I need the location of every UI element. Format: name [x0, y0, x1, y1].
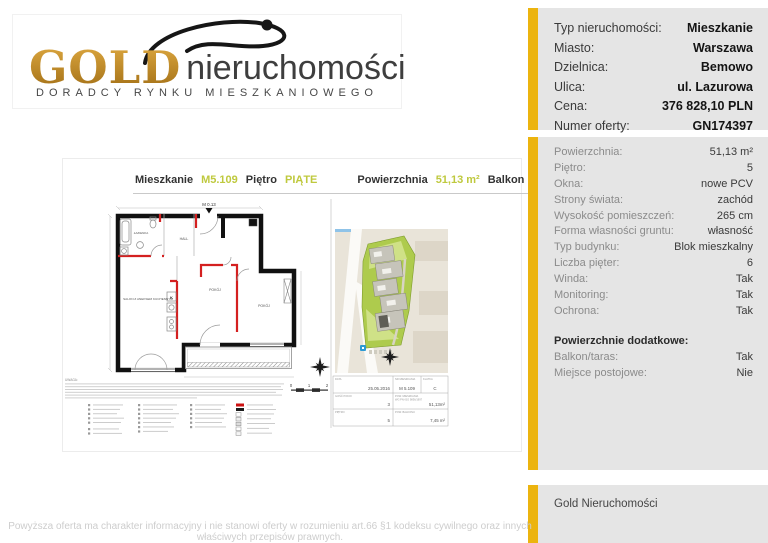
plan-area-label: Powierzchnia	[357, 174, 427, 186]
scale-bar: 0 1 2	[290, 383, 329, 392]
tb-balcony-label: POW. BALKONU	[395, 410, 415, 414]
floor-plan-drawing: K M 0.13 ŁAZIENKA SALON Z ANEKSEM KUCHEN…	[63, 199, 523, 453]
detail-row: Typ budynku: Blok mieszkalny	[554, 241, 753, 257]
plan-floor-label: Piętro	[246, 174, 277, 186]
tb-date-label: DATA	[335, 377, 342, 381]
room-label-room1: POKÓJ	[209, 287, 221, 292]
agency-name: Gold Nieruchomości	[554, 498, 753, 510]
room-label-living: SALON Z ANEKSEM KUCHENNYM	[123, 297, 173, 301]
balcony	[186, 347, 292, 369]
tb-balcony-value: 7,45 m²	[430, 418, 445, 423]
details-rows: Powierzchnia: 51,13 m² Piętro: 5 Okna: n…	[554, 146, 753, 321]
plan-note: UWAGA:	[65, 378, 284, 398]
room-label-room2: POKÓJ	[258, 303, 270, 308]
detail-row: Monitoring: Tak	[554, 289, 753, 305]
detail-row: Ochrona: Tak	[554, 305, 753, 321]
plan-floor-value: PIĄTE	[285, 174, 317, 186]
apartment-plan: K M 0.13 ŁAZIENKA SALON Z ANEKSEM KUCHEN…	[108, 202, 301, 377]
plan-apartment-label: Mieszkanie	[135, 174, 193, 186]
detail-row: Piętro: 5	[554, 162, 753, 178]
tb-floor-label: PIĘTRO	[335, 410, 345, 414]
scale-tick-1: 1	[308, 383, 311, 388]
detail-row: Winda: Tak	[554, 273, 753, 289]
plan-balcony-label: Balkon	[488, 174, 525, 186]
detail-row: Powierzchnia: 51,13 m²	[554, 146, 753, 162]
tb-unit-value: M 5.109	[399, 386, 415, 391]
tb-area-value: 51,13m²	[429, 402, 446, 407]
compass-rose-icon	[310, 357, 330, 377]
tb-floor-value: 5	[388, 418, 391, 423]
entrance-label: M 0.13	[202, 202, 216, 207]
site-map	[335, 229, 448, 373]
floor-plan-document: MieszkanieM5.109PiętroPIĄTEPowierzchnia5…	[62, 158, 522, 452]
detail-row: Strony świata: zachód	[554, 194, 753, 210]
plan-area-value: 51,13 m²	[436, 174, 480, 186]
summary-row: Numer oferty: GN174397	[554, 119, 753, 139]
detail-row: Liczba pięter: 6	[554, 257, 753, 273]
summary-row: Miasto: Warszawa	[554, 41, 753, 61]
plan-legend	[88, 404, 276, 436]
logo-rest-text: nieruchomości	[186, 49, 405, 87]
offer-page: GOLDnieruchomości DORADCY RYNKU MIESZKAN…	[0, 0, 768, 543]
detail-row: Wysokość pomieszczeń: 265 cm	[554, 210, 753, 226]
scale-tick-0: 0	[290, 383, 293, 388]
note-label: UWAGA:	[65, 378, 78, 382]
summary-row: Ulica: ul. Lazurowa	[554, 80, 753, 100]
tb-staircase-value: C	[433, 386, 436, 391]
footer-disclaimer: Powyższa oferta ma charakter informacyjn…	[0, 521, 540, 543]
extras-rows: Balkon/taras: Tak Miejsce postojowe: Nie	[554, 351, 753, 383]
room-label-bathroom: ŁAZIENKA	[134, 231, 149, 235]
plan-header: MieszkanieM5.109PiętroPIĄTEPowierzchnia5…	[133, 174, 576, 194]
extras-heading: Powierzchnie dodatkowe:	[554, 335, 753, 351]
tb-date-value: 25.05.2016	[368, 386, 391, 391]
extra-row: Miejsce postojowe: Nie	[554, 367, 753, 383]
title-block: DATA NR MIESZKANIA KLATKA ILOŚĆ POKOI PO…	[333, 376, 448, 426]
agency-logo: GOLDnieruchomości DORADCY RYNKU MIESZKAN…	[12, 14, 402, 109]
tb-rooms-label: ILOŚĆ POKOI	[335, 393, 352, 398]
plan-apartment-value: M5.109	[201, 174, 238, 186]
tb-unit-label: NR MIESZKANIA	[395, 377, 415, 381]
tb-area-label: POW. MIESZKANIA	[395, 394, 418, 398]
summary-panel: Typ nieruchomości: Mieszkanie Miasto: Wa…	[528, 8, 768, 130]
agency-panel: Gold Nieruchomości	[528, 485, 768, 543]
details-panel: Powierzchnia: 51,13 m² Piętro: 5 Okna: n…	[528, 137, 768, 470]
detail-row: Okna: nowe PCV	[554, 178, 753, 194]
tb-area-label2: WG PN-ISO 9836/1997	[395, 397, 423, 401]
logo-tagline: DORADCY RYNKU MIESZKANIOWEGO	[13, 87, 401, 99]
summary-row: Typ nieruchomości: Mieszkanie	[554, 21, 753, 41]
summary-row: Dzielnica: Bemowo	[554, 60, 753, 80]
room-label-hall: HALL	[180, 237, 189, 241]
extra-row: Balkon/taras: Tak	[554, 351, 753, 367]
scale-tick-2: 2	[326, 383, 329, 388]
summary-row: Cena: 376 828,10 PLN	[554, 99, 753, 119]
map-marker-icon	[360, 345, 366, 351]
detail-row: Forma własności gruntu: własność	[554, 225, 753, 241]
tb-rooms-value: 3	[388, 402, 391, 407]
tb-staircase-label: KLATKA	[423, 377, 433, 381]
